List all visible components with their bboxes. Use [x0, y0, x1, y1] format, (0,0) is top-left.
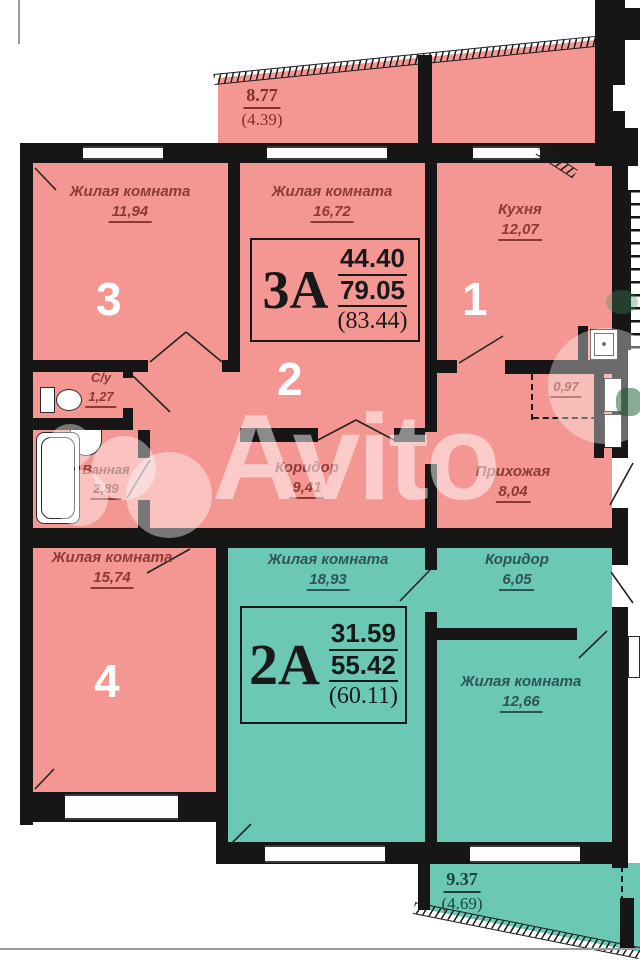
room-label-living-2a-big: Жилая комната 18,93: [268, 550, 389, 591]
room-area: 9,41: [289, 478, 324, 500]
apartment-code: 2А: [249, 636, 320, 694]
door-swing: [127, 460, 150, 498]
apartment-2a-infobox: 2А 31.59 55.42 (60.11): [240, 606, 407, 724]
room-name: Жилая комната: [70, 182, 191, 202]
room-area: 2,89: [90, 481, 121, 500]
room-label-hallway: Прихожая 8,04: [476, 462, 550, 503]
room-number-2: 2: [277, 352, 303, 406]
living-area-total: 31.59: [329, 619, 398, 651]
door-swing: [579, 631, 607, 658]
corner-line: [35, 168, 56, 190]
area-with-balcony: (83.44): [338, 307, 408, 336]
door-swing: [318, 420, 356, 440]
living-area-total: 44.40: [338, 244, 407, 276]
room-label-living-2: Жилая комната 16,72: [272, 182, 393, 223]
balcony-bottom-label: 9.37 (4.69): [441, 868, 482, 914]
room-name: Ванная: [82, 462, 129, 479]
room-name: Жилая комната: [52, 548, 173, 568]
room-area: 8,04: [495, 482, 530, 504]
room-label-bath: Ванная 2,89: [82, 462, 129, 500]
room-label-niche: 0,97: [550, 377, 581, 398]
room-area: 12,66: [499, 692, 543, 714]
door-swing: [186, 332, 222, 362]
balcony-area-reduced: (4.39): [241, 109, 282, 130]
apartment-code: 3А: [263, 263, 329, 317]
room-area: 11,94: [109, 202, 151, 224]
door-swing: [400, 570, 430, 601]
room-name: Жилая комната: [268, 550, 389, 570]
room-number-1: 1: [462, 272, 488, 326]
room-name: Жилая комната: [272, 182, 393, 202]
room-area: 6,05: [499, 570, 534, 592]
balcony-area: 9.37: [443, 868, 481, 893]
frame-line: [0, 948, 640, 950]
door-swing: [459, 336, 503, 363]
apartment-3a-infobox: 3А 44.40 79.05 (83.44): [250, 238, 420, 342]
room-name: Прихожая: [476, 462, 550, 482]
door-swing: [611, 572, 633, 603]
room-label-living-2a-small: Жилая комната 12,66: [461, 672, 582, 713]
balcony-top-label: 8.77 (4.39): [241, 84, 282, 130]
room-area: 12,07: [498, 220, 542, 242]
apartment-area: 79.05: [338, 276, 407, 308]
room-number-3: 3: [96, 272, 122, 326]
room-label-corridor-3a: Коридор 9,41: [275, 458, 339, 499]
room-label-living-3: Жилая комната 11,94: [70, 182, 191, 223]
room-name: С/у: [85, 370, 116, 387]
room-label-kitchen: Кухня 12,07: [498, 200, 542, 241]
room-name: Коридор: [275, 458, 339, 478]
room-label-wc: С/у 1,27: [85, 370, 116, 408]
room-number-4: 4: [94, 654, 120, 708]
room-area: 15,74: [90, 568, 134, 590]
door-swing: [610, 463, 633, 505]
apartment-area: 55.42: [329, 651, 398, 683]
room-area: 1,27: [85, 389, 116, 408]
balcony-area-reduced: (4.69): [441, 893, 482, 914]
floor-plan: Жилая комната 11,94 Жилая комната 16,72 …: [0, 0, 640, 960]
room-name: Кухня: [498, 200, 542, 220]
room-name: Жилая комната: [461, 672, 582, 692]
door-swing: [231, 824, 251, 844]
room-area: 0,97: [550, 379, 581, 398]
area-with-balcony: (60.11): [329, 682, 398, 711]
door-swing: [150, 332, 186, 362]
room-area: 18,93: [306, 570, 350, 592]
room-label-corridor-2a: Коридор 6,05: [485, 550, 549, 591]
door-swing: [356, 420, 394, 440]
corner-line: [35, 769, 54, 789]
frame-line: [18, 0, 20, 44]
room-name: Коридор: [485, 550, 549, 570]
door-swing: [133, 376, 170, 412]
room-label-living-4: Жилая комната 15,74: [52, 548, 173, 589]
room-area: 16,72: [310, 202, 354, 224]
balcony-area: 8.77: [243, 84, 281, 109]
